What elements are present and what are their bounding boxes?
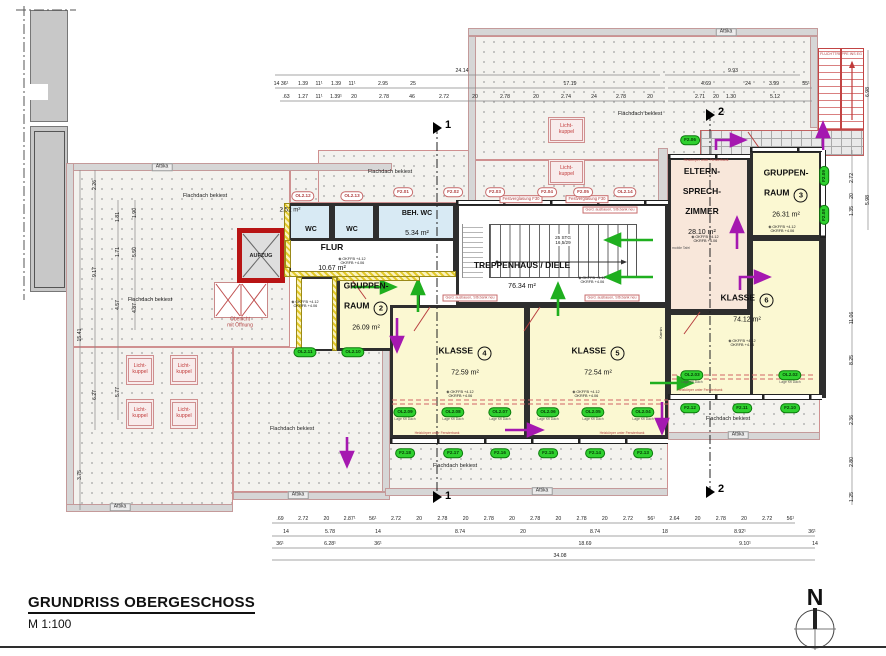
dimension-right: 2.36 <box>849 415 855 425</box>
window-band-treppenhaus-top <box>456 200 668 205</box>
lage-note: Lage Kfl Dach <box>394 418 415 422</box>
level-note: ◈ OKFFB +4.12 OKRFB +4.06 <box>728 339 755 347</box>
label-klasse5: KLASSE 5 72.54 m² <box>572 340 625 381</box>
dimension: 25 <box>410 81 416 87</box>
window-tag-F2.15: F2.15 <box>538 448 558 458</box>
dimension: 20 <box>520 529 526 535</box>
attika-label: Attika <box>110 503 131 511</box>
dimension: 2.72 <box>439 94 449 100</box>
level-note: ◈ OKFFB +4.12 OKRFB +4.06 <box>578 276 605 284</box>
dimension: 24 <box>745 81 751 87</box>
lage-note: Lage Kfl Dach <box>537 418 558 422</box>
label-vorraum-area: 2.52 m² <box>280 208 301 215</box>
new-wall-hatch <box>332 277 337 351</box>
dimension: 20 <box>713 94 719 100</box>
window-tag-OL2.03: OL2.03 <box>680 370 703 380</box>
lage-note: Lage Kfl Dach <box>681 381 702 385</box>
dimension: 20 <box>509 516 515 522</box>
window-tag-F2.06: F2.06 <box>680 135 700 145</box>
label-wc-left: WC <box>305 217 317 237</box>
rooflight-mullions <box>216 284 266 316</box>
dimension: 20 <box>556 516 562 522</box>
window-tag-OL2.06: OL2.06 <box>536 407 559 417</box>
dimension-right: 2.80 <box>849 457 855 467</box>
dimension: 20 <box>463 516 469 522</box>
lage-note: Lage Kfl Dach <box>779 381 800 385</box>
bank-note: Gerd. ausbauen, Stb.bank neu <box>583 207 638 214</box>
title-block: GRUNDRISS OBERGESCHOSS M 1:100 <box>28 594 255 631</box>
window-tag-OL2.11: OL2.11 <box>293 347 316 357</box>
dimension: 2.78 <box>577 516 587 522</box>
room-name: BEH. WC <box>402 210 432 217</box>
dimension: 2.78 <box>616 94 626 100</box>
new-wall-hatch <box>296 277 302 351</box>
dimension: 20 <box>324 516 330 522</box>
dimension-right: 6.98 <box>865 87 871 97</box>
dimension: 5.78 <box>325 529 335 535</box>
label-wc-right: WC <box>346 217 358 237</box>
dimension: 11¹ <box>315 94 322 100</box>
window-band-klasse6 <box>668 394 822 400</box>
festverglasung-note: Festverglasung F30 <box>499 195 542 203</box>
dimension: 1.39¹ <box>330 94 342 100</box>
oberlicht-line2: mit Öffnung <box>227 322 253 328</box>
section-marker-2-bottom: 2 <box>718 483 724 495</box>
dimension: 2.78 <box>716 516 726 522</box>
room-number: 6 <box>759 294 773 308</box>
dimension-right: 1.25 <box>849 492 855 502</box>
north-label: N <box>807 584 824 611</box>
section-marker-2-top: 2 <box>718 106 724 118</box>
bank-note: Gerd. ausbauen, Stb.bank neu <box>585 295 640 302</box>
dimension: 56¹ <box>647 516 655 522</box>
flat-roof-label: Flachdach bekiest <box>183 193 227 199</box>
room-name: ZIMMER <box>685 206 719 216</box>
room-name: KLASSE <box>439 346 473 356</box>
dimension: 20 <box>695 516 701 522</box>
dimension: 2.72 <box>391 516 401 522</box>
room-name: GRUPPEN- <box>344 281 389 291</box>
window-band-south <box>390 438 668 444</box>
dimension: 20 <box>647 94 653 100</box>
section-marker-1-bottom: 1 <box>445 490 451 502</box>
dimension: 24 <box>591 94 597 100</box>
north-symbol <box>794 608 836 650</box>
label-klasse4: KLASSE 4 72.59 m² <box>439 340 492 381</box>
room-area: 72.59 m² <box>451 370 479 377</box>
dimension: 46 <box>409 94 415 100</box>
dimension: 56¹ <box>369 516 377 522</box>
dimension: 1.39 <box>331 81 341 87</box>
dimension: 2.72 <box>762 516 772 522</box>
level-note: ◈ OKFFB +4.12 OKRFB +4.06 <box>768 225 795 233</box>
dimension: 2.78 <box>379 94 389 100</box>
dimension-left: 5.50 <box>132 247 138 257</box>
dimension: 14 <box>283 529 289 535</box>
room-number: 2 <box>374 302 388 316</box>
label-mobile-tafel: mobile Tafel <box>672 247 690 251</box>
dimension: 1.39 <box>298 81 308 87</box>
dimension: 2.71 <box>695 94 705 100</box>
lage-note: Lage Kfl Dach <box>632 418 653 422</box>
lage-note: Lage Kfl Dach <box>442 418 463 422</box>
room-area: 72.54 m² <box>584 370 612 377</box>
dimension: 20 <box>533 94 539 100</box>
dimension-left: 4.57 <box>115 300 121 310</box>
dimension: 2.74 <box>561 94 571 100</box>
window-tag-F2.14: F2.14 <box>585 448 605 458</box>
window-tag-OL2.02: OL2.02 <box>778 370 801 380</box>
window-tag-OL2.12: OL2.12 <box>291 191 314 201</box>
window-tag-OL2.13: OL2.13 <box>340 191 363 201</box>
dimension-left: 3.75 <box>77 470 83 480</box>
window-tag-F2.03: F2.03 <box>485 187 505 197</box>
label-eltern-sprech-zimmer: ELTERN- SPRECH- ZIMMER 28.10 m² <box>683 160 721 240</box>
window-tag-OL2.14: OL2.14 <box>613 187 636 197</box>
window-tag-F2.05: F2.05 <box>573 187 593 197</box>
window-tag-OL2.04: OL2.04 <box>631 407 654 417</box>
flat-roof-label: Flachdach bekiest <box>433 463 477 469</box>
dimension: .63 <box>282 94 289 100</box>
dimension: 36¹ <box>808 529 816 535</box>
dimension: 20 <box>602 516 608 522</box>
label-treppenhaus: TREPPENHAUS / DIELE 76.34 m² <box>474 254 570 294</box>
label-oberlicht: Oberlicht mit Öffnung <box>227 318 253 329</box>
window-tag-OL2.09: OL2.09 <box>393 407 416 417</box>
heizkoerper-note: Heizkörper unter Fensterbank <box>600 432 645 436</box>
dimension: 2.87¹ <box>344 516 356 522</box>
dimension: 18 <box>662 529 668 535</box>
label-kamin: Kamin <box>659 327 663 338</box>
dimension: 2.72 <box>298 516 308 522</box>
window-tag-F2.04: F2.04 <box>537 187 557 197</box>
dimension: 14 <box>812 541 818 547</box>
room-name: TREPPENHAUS / DIELE <box>474 260 570 270</box>
dimension: 24.14 <box>456 68 469 74</box>
dimension: 3.99 <box>769 81 779 87</box>
dimension: .69 <box>276 516 283 522</box>
dimension: 36¹ <box>276 541 284 547</box>
window-band-gr3-top <box>750 147 822 152</box>
window-tag-F2.17: F2.17 <box>443 448 463 458</box>
label-beh-wc: BEH. WC 5.34 m² <box>402 201 432 241</box>
window-tag-F2.02: F2.02 <box>443 187 463 197</box>
room-name: RAUM <box>344 301 370 311</box>
flat-roof-label: Flachdach bekiest <box>368 169 412 175</box>
dimension: 18.69 <box>579 541 592 547</box>
dimension: 14 36¹ <box>274 81 289 87</box>
dimension-left: 15.41 <box>77 329 83 342</box>
window-tag-F2.13: F2.13 <box>633 448 653 458</box>
section-marker-1-top: 1 <box>445 119 451 131</box>
room-number: 3 <box>794 189 808 203</box>
dimension: 34.08 <box>554 553 567 559</box>
dimension: 11¹ <box>315 81 322 87</box>
room-number: 4 <box>477 347 491 361</box>
room-area: 76.34 m² <box>508 283 536 290</box>
room-area: 10.67 m² <box>318 265 346 272</box>
sheet-bottom-rule <box>0 646 886 648</box>
bank-note: Gerd. ausbauen, Stb.bank neu <box>443 295 498 302</box>
window-tag-F2.18: F2.18 <box>395 448 415 458</box>
label-gruppenraum3: GRUPPEN- RAUM 3 26.31 m² <box>764 162 809 223</box>
lage-note: Lage Kfl Dach <box>582 418 603 422</box>
attika-label: Attika <box>728 431 749 439</box>
window-tag-F2.01: F2.01 <box>393 187 413 197</box>
window-tag-F2.11: F2.11 <box>732 403 752 413</box>
stairs-rise: 16,5/29 <box>555 240 570 245</box>
level-note: ◈ OKFFB +4.12 OKRFB +4.06 <box>446 390 473 398</box>
room-name: KLASSE <box>721 293 755 303</box>
dimension: 8.74 <box>455 529 465 535</box>
label-klasse6: KLASSE 6 74.12 m² <box>721 287 774 328</box>
room-name: WC <box>346 226 358 233</box>
dimension: 55¹ <box>802 81 810 87</box>
dimension-left: 6.27 <box>92 390 98 400</box>
dimension: 5.12 <box>770 94 780 100</box>
window-tag-OL2.10: OL2.10 <box>341 347 364 357</box>
dimension: 2.78 <box>500 94 510 100</box>
flat-roof-label: Flachdach bekiest <box>618 111 662 117</box>
dimension-left: 2.26 <box>92 180 98 190</box>
room-name: SPRECH- <box>683 186 721 196</box>
dimension: 1.27 <box>298 94 308 100</box>
dimension-right: 11.06 <box>849 312 855 325</box>
dimension: 20 <box>416 516 422 522</box>
room-name: GRUPPEN- <box>764 168 809 178</box>
room-name: FLUR <box>321 242 344 252</box>
window-tag-F2.10: F2.10 <box>780 403 800 413</box>
room-area: 26.31 m² <box>772 212 800 219</box>
room-area: 26.09 m² <box>352 325 380 332</box>
dimension-right: 5.98 <box>865 195 871 205</box>
page-title: GRUNDRISS OBERGESCHOSS <box>28 594 255 614</box>
dimension: 20 <box>351 94 357 100</box>
dimension-left: 9.17 <box>92 267 98 277</box>
heizkoerper-note: Heizkörper unter Fensterbank <box>678 389 723 393</box>
floor-plan-canvas: WC WC BEH. WC 5.34 m² FLUR 10.67 m² TREP… <box>0 0 886 656</box>
room-name: ELTERN- <box>684 166 720 176</box>
dimension: 8.92¹ <box>734 529 746 535</box>
dimension: 4.69 <box>701 81 711 87</box>
window-tag-OL2.08: OL2.08 <box>441 407 464 417</box>
label-flur: FLUR 10.67 m² <box>318 236 346 276</box>
dimension-left: 5.77 <box>115 387 121 397</box>
room-number: 5 <box>610 347 624 361</box>
room-name: WC <box>305 226 317 233</box>
dimension: 2.78 <box>437 516 447 522</box>
dimension-right: 8.25 <box>849 355 855 365</box>
window-tag-OL2.05: OL2.05 <box>581 407 604 417</box>
attika-label: Attika <box>152 163 173 171</box>
window-tag-F2.12: F2.12 <box>680 403 700 413</box>
dimension-right: 2.72 <box>849 173 855 183</box>
label-aufzug: AUFZUG <box>250 253 273 259</box>
dimension: 2.78 <box>530 516 540 522</box>
flat-roof-label: Flachdach bekiest <box>270 426 314 432</box>
window-tag-OL2.07: OL2.07 <box>488 407 511 417</box>
window-tag-F2.08: F2.08 <box>819 205 829 225</box>
drawing-scale: M 1:100 <box>28 617 255 631</box>
room-name: KLASSE <box>572 346 606 356</box>
window-tag-F2.16: F2.16 <box>490 448 510 458</box>
room-area: 74.12 m² <box>733 317 761 324</box>
dimension: 8.74 <box>590 529 600 535</box>
dimension-left: 1.90 <box>132 208 138 218</box>
dimension-left: 4.87 <box>132 303 138 313</box>
dimension: 2.95 <box>378 81 388 87</box>
dimension: 2.64 <box>669 516 679 522</box>
attika-label: Attika <box>288 491 309 499</box>
dimension: 36¹ <box>374 541 382 547</box>
label-stairs: 25 STG 16,5/29 <box>553 234 573 246</box>
section-line-1 <box>433 122 442 503</box>
room-name: RAUM <box>764 188 790 198</box>
label-fluchttreppe: FLUCHTTREPPE INS EG <box>820 53 862 57</box>
new-wall-hatch <box>285 240 291 268</box>
label-gruppenraum2: GRUPPEN- RAUM 2 26.09 m² <box>344 275 389 336</box>
dimension: 6.28¹ <box>324 541 336 547</box>
attika-label: Attika <box>532 487 553 495</box>
flat-roof-label: Flachdach bekiest <box>706 416 750 422</box>
dimension-left: 1.81 <box>115 212 121 222</box>
window-tag-F2.09: F2.09 <box>819 166 829 186</box>
attika-label: Attika <box>716 28 737 36</box>
dimension: 20 <box>472 94 478 100</box>
room-area: 28.10 m² <box>688 229 716 236</box>
dimension: 2.78 <box>484 516 494 522</box>
dimension: 56¹ <box>787 516 795 522</box>
dimension-right: 20 <box>849 193 855 199</box>
dimension-left: 1.71 <box>115 247 121 257</box>
level-note: ◈ OKFFB +4.12 OKRFB +4.06 <box>572 390 599 398</box>
level-note: ◈ OKFFB +4.12 OKRFB +4.06 <box>291 300 318 308</box>
dimension: 11¹ <box>348 81 355 87</box>
dimension: 17.19 <box>564 81 577 87</box>
dimension: 1.30 <box>726 94 736 100</box>
dimension: 9.93 <box>728 68 738 74</box>
heizkoerper-note: Heizkörper unter Fensterbank <box>415 432 460 436</box>
room-area: 5.34 m² <box>405 230 429 237</box>
dimension-right: 1.35 <box>849 206 855 216</box>
dimension: 20 <box>741 516 747 522</box>
dimension: 14 <box>375 529 381 535</box>
dimension: 2.72 <box>623 516 633 522</box>
lage-note: Lage Kfl Dach <box>489 418 510 422</box>
dimension: 9.10¹ <box>739 541 751 547</box>
